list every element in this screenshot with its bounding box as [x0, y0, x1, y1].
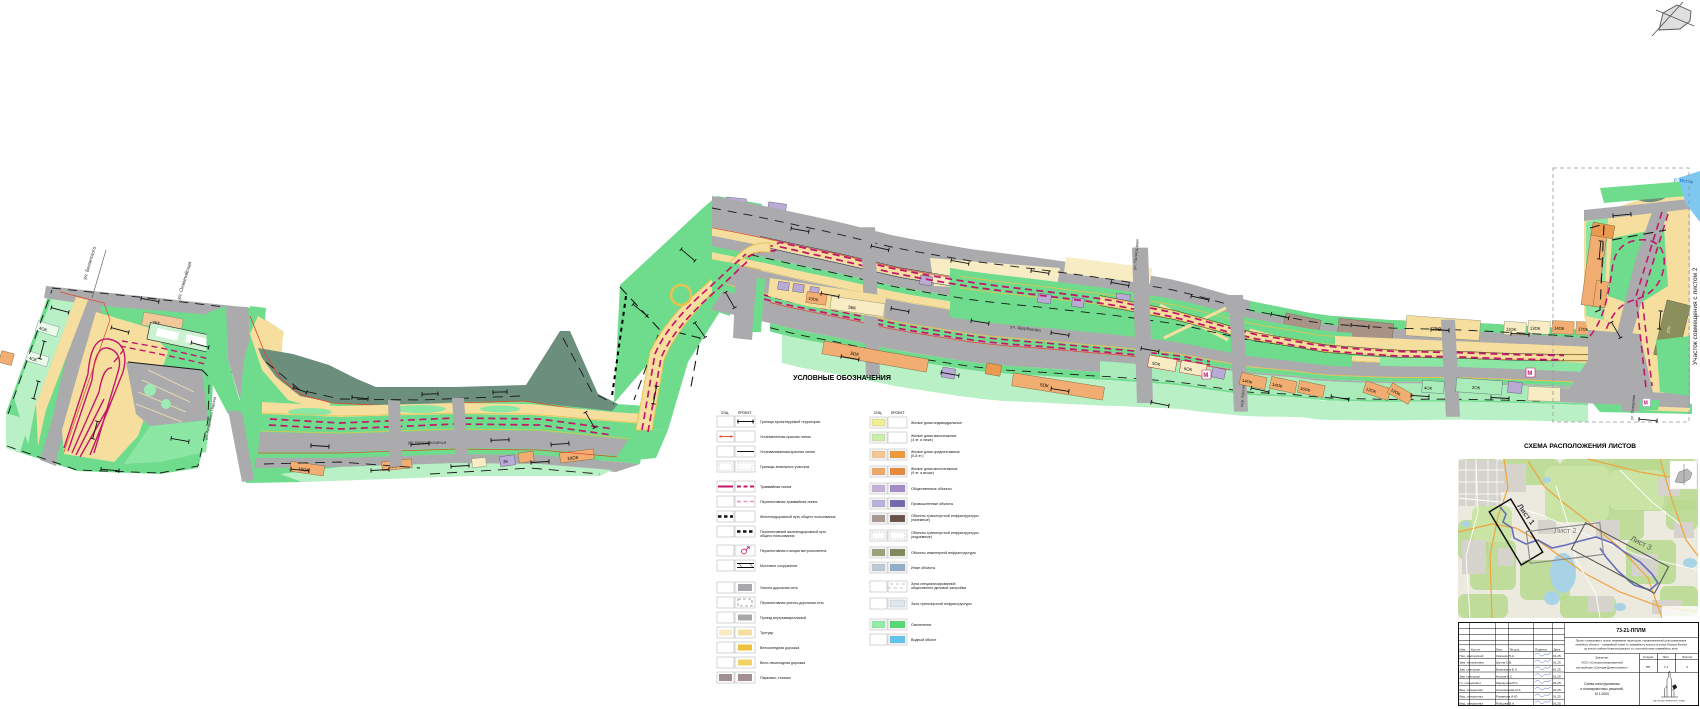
svg-text:Лист: Лист: [1663, 655, 1670, 659]
svg-text:Жилые дома индивидуальные: Жилые дома индивидуальные: [911, 421, 962, 425]
svg-text:Перспективная улично-дорожная: Перспективная улично-дорожная сеть: [760, 601, 824, 605]
svg-text:Железнодорожный путь общего по: Железнодорожный путь общего пользования: [760, 515, 836, 519]
svg-text:Зам. начальника: Зам. начальника: [1460, 661, 1484, 665]
svg-text:01.25: 01.25: [1553, 654, 1561, 658]
svg-text:№ док.: № док.: [1510, 647, 1520, 651]
svg-text:11ОК: 11ОК: [1506, 326, 1517, 332]
svg-text:01.25: 01.25: [1553, 674, 1561, 678]
svg-text:(5-8 эт.): (5-8 эт.): [911, 454, 924, 458]
svg-text:Границы земельных участков: Границы земельных участков: [760, 465, 809, 469]
svg-text:Вед. специалист: Вед. специалист: [1460, 695, 1484, 699]
svg-text:Вело-пешеходная дорожка: Вело-пешеходная дорожка: [760, 661, 805, 665]
svg-text:СУЩ.: СУЩ.: [721, 411, 730, 415]
svg-text:М: М: [1644, 401, 1648, 407]
svg-text:01.25: 01.25: [1553, 668, 1561, 672]
svg-text:Листов: Листов: [1682, 655, 1692, 659]
svg-text:и планировочных решений,: и планировочных решений,: [1580, 687, 1623, 691]
svg-text:Заказчик:: Заказчик:: [1595, 656, 1609, 660]
svg-text:М: М: [1203, 373, 1208, 379]
svg-text:Романцев И.Ю.: Романцев И.Ю.: [1496, 695, 1518, 699]
svg-text:Участок совмещения с листом 2: Участок совмещения с листом 2: [1692, 267, 1699, 365]
svg-text:Шутов С.В.: Шутов С.В.: [1496, 661, 1512, 665]
svg-text:Объекты инженерной инфраструкт: Объекты инженерной инфраструктуры: [911, 551, 976, 555]
svg-text:Лист: Лист: [1496, 647, 1503, 651]
svg-text:Вед. специалист: Вед. специалист: [1460, 688, 1484, 692]
svg-text:14ОК: 14ОК: [1554, 325, 1565, 331]
svg-text:01.25: 01.25: [1553, 695, 1561, 699]
svg-text:УСЛОВНЫЕ ОБОЗНАЧЕНИЯ: УСЛОВНЫЕ ОБОЗНАЧЕНИЯ: [793, 375, 891, 382]
svg-text:Общественные объекты: Общественные объекты: [911, 487, 952, 491]
svg-text:Кол.уч: Кол.уч: [1471, 647, 1481, 651]
svg-text:(4 эт. и ниже): (4 эт. и ниже): [911, 438, 933, 442]
svg-text:01.25: 01.25: [1553, 702, 1561, 706]
svg-text:Проект планировки и проект меж: Проект планировки и проект межевания тер…: [1576, 639, 1687, 643]
svg-text:застройщик «Синара-Девелопмент: застройщик «Синара-Девелопмент»: [1576, 666, 1629, 670]
svg-text:13ОК: 13ОК: [1530, 325, 1541, 331]
svg-text:Велосипедная дорожка: Велосипедная дорожка: [760, 646, 799, 650]
svg-text:Карякушев В.С.: Карякушев В.С.: [1496, 681, 1519, 685]
svg-text:СХЕМА РАСПОЛОЖЕНИЯ ЛИСТОВ: СХЕМА РАСПОЛОЖЕНИЯ ЛИСТОВ: [1524, 443, 1636, 450]
svg-text:ПП: ПП: [1646, 665, 1650, 669]
svg-text:Перспективная станция метропол: Перспективная станция метрополитена: [760, 549, 826, 553]
svg-text:Промышленные объекты: Промышленные объекты: [911, 502, 954, 506]
svg-text:общего пользования: общего пользования: [760, 534, 795, 538]
svg-text:Устанавливаемая красная линия: Устанавливаемая красная линия: [760, 450, 815, 454]
svg-text:М: М: [1527, 371, 1532, 377]
svg-text:Рубцова В.А.: Рубцова В.А.: [1496, 702, 1515, 706]
svg-text:Водный объект: Водный объект: [911, 638, 937, 642]
svg-text:Дата: Дата: [1554, 647, 1561, 651]
svg-text:Установленная красная линия: Установленная красная линия: [760, 435, 811, 439]
svg-text:Свечков П.А.: Свечков П.А.: [1496, 654, 1515, 658]
svg-text:Перспективная трамвайная линия: Перспективная трамвайная линия: [760, 500, 817, 504]
svg-text:СУЩ.: СУЩ.: [874, 411, 883, 415]
svg-text:7.1: 7.1: [1664, 665, 1669, 669]
svg-text:Березкина Е.А.: Березкина Е.А.: [1496, 668, 1518, 672]
svg-text:73-21-ППЛМ: 73-21-ППЛМ: [1616, 628, 1645, 634]
svg-text:ООО «Специализированный: ООО «Специализированный: [1581, 661, 1623, 665]
svg-text:Тротуар: Тротуар: [760, 631, 773, 635]
svg-text:ПРОЕКТ.: ПРОЕКТ.: [891, 411, 905, 415]
svg-text:Мостовое сооружение: Мостовое сооружение: [760, 564, 797, 568]
svg-text:Озеленение: Озеленение: [911, 623, 931, 627]
svg-text:Улично-дорожная сеть: Улично-дорожная сеть: [760, 586, 798, 590]
svg-text:МАСТЕРСКАЯ ГЕНЕРАЛЬНОГО ПЛАНА: МАСТЕРСКАЯ ГЕНЕРАЛЬНОГО ПЛАНА: [1653, 700, 1686, 703]
svg-text:Парковки, стоянки: Парковки, стоянки: [760, 676, 791, 680]
svg-text:Схема конструктивных: Схема конструктивных: [1584, 682, 1620, 686]
svg-text:Зав. сектором: Зав. сектором: [1460, 674, 1480, 678]
svg-text:01.25: 01.25: [1553, 661, 1561, 665]
svg-text:ПРОЕКТ.: ПРОЕКТ.: [738, 411, 752, 415]
svg-text:Изм.: Изм.: [1460, 647, 1467, 651]
svg-text:4ОК: 4ОК: [1424, 385, 1433, 391]
svg-text:Зона транспортной инфраструкту: Зона транспортной инфраструктуры: [911, 602, 972, 606]
svg-text:3: 3: [1686, 665, 1688, 669]
svg-text:Трамвайная линия: Трамвайная линия: [760, 485, 791, 489]
svg-text:общественно-деловой застройки: общественно-деловой застройки: [911, 586, 966, 590]
svg-text:(подземные): (подземные): [911, 535, 932, 539]
svg-text:(9 эт. и выше): (9 эт. и выше): [911, 471, 934, 475]
svg-text:Лист 2: Лист 2: [1554, 526, 1577, 535]
svg-text:Зав. сектором: Зав. сектором: [1460, 668, 1480, 672]
svg-text:01.25: 01.25: [1553, 688, 1561, 692]
svg-text:Колесникова Я.А.: Колесникова Я.А.: [1496, 688, 1521, 692]
svg-text:до жилого района Новокольцовск: до жилого района Новокольцовского со стр…: [1584, 646, 1678, 650]
svg-text:Носков В.С.: Носков В.С.: [1496, 674, 1513, 678]
svg-text:(наземные): (наземные): [911, 518, 930, 522]
svg-text:01.25: 01.25: [1553, 681, 1561, 685]
svg-text:Стадия: Стадия: [1643, 655, 1654, 659]
svg-text:Иные объекты: Иные объекты: [911, 566, 936, 570]
svg-text:Вед. специалист: Вед. специалист: [1460, 702, 1484, 706]
svg-text:Проезд внутриквартальный: Проезд внутриквартальный: [760, 616, 806, 620]
svg-text:Нач. мастерской: Нач. мастерской: [1460, 654, 1484, 658]
svg-text:линейного объекта – трамвайной: линейного объекта – трамвайной линии от …: [1575, 642, 1687, 646]
svg-text:2ОК: 2ОК: [1472, 385, 1481, 391]
svg-text:Гл. специалист: Гл. специалист: [1460, 681, 1482, 685]
svg-text:Подпись: Подпись: [1535, 647, 1548, 651]
svg-text:Граница проектируемой территор: Граница проектируемой территории: [760, 420, 820, 424]
svg-text:М 1:2000: М 1:2000: [1595, 692, 1609, 696]
